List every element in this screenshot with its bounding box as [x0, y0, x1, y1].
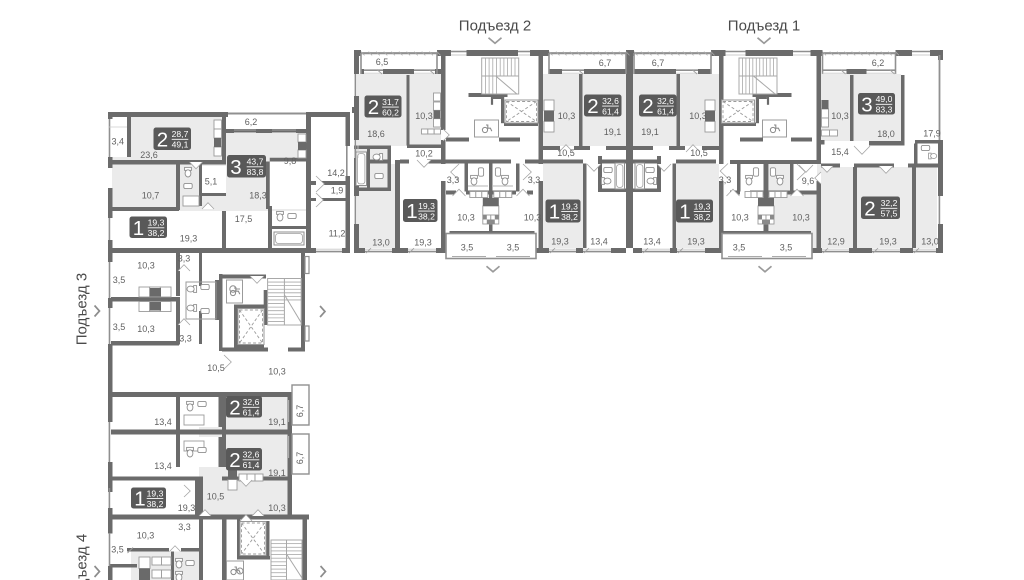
svg-text:1: 1 — [549, 201, 560, 224]
svg-text:60,2: 60,2 — [382, 107, 399, 117]
svg-text:32,6: 32,6 — [243, 450, 260, 460]
svg-text:19,1: 19,1 — [641, 127, 659, 137]
svg-text:19,3: 19,3 — [148, 218, 165, 228]
svg-text:10,5: 10,5 — [207, 363, 225, 373]
svg-text:31,7: 31,7 — [382, 97, 399, 107]
svg-text:19,1: 19,1 — [604, 127, 622, 137]
svg-text:3,4: 3,4 — [111, 137, 124, 147]
svg-text:13,0: 13,0 — [372, 238, 390, 248]
svg-text:13,4: 13,4 — [643, 237, 661, 247]
svg-text:19,3: 19,3 — [414, 238, 432, 248]
svg-text:19,3: 19,3 — [561, 201, 578, 211]
svg-text:3,5: 3,5 — [461, 243, 474, 253]
svg-text:3,3: 3,3 — [178, 254, 191, 264]
svg-text:49,0: 49,0 — [876, 94, 893, 104]
svg-text:2: 2 — [229, 396, 240, 419]
svg-text:43,7: 43,7 — [247, 157, 264, 167]
svg-text:10,3: 10,3 — [137, 531, 155, 541]
svg-text:9,6: 9,6 — [802, 176, 815, 186]
svg-text:10,5: 10,5 — [207, 492, 225, 502]
svg-text:38,2: 38,2 — [148, 228, 165, 238]
svg-text:Подъезд 3: Подъезд 3 — [73, 273, 90, 345]
svg-text:3,5: 3,5 — [780, 243, 793, 253]
svg-text:2: 2 — [587, 95, 598, 118]
svg-text:19,3: 19,3 — [694, 201, 711, 211]
svg-text:10,3: 10,3 — [457, 213, 475, 223]
svg-text:38,2: 38,2 — [418, 211, 435, 221]
svg-text:6,2: 6,2 — [245, 117, 258, 127]
svg-text:18,6: 18,6 — [367, 129, 385, 139]
svg-text:57,5: 57,5 — [881, 209, 898, 219]
svg-text:10,3: 10,3 — [524, 213, 542, 223]
svg-text:10,3: 10,3 — [831, 111, 849, 121]
svg-text:19,3: 19,3 — [879, 237, 897, 247]
svg-text:61,4: 61,4 — [243, 408, 260, 418]
svg-text:3,5: 3,5 — [113, 322, 126, 332]
svg-text:19,1: 19,1 — [268, 417, 286, 427]
svg-text:10,3: 10,3 — [268, 367, 286, 377]
svg-text:61,4: 61,4 — [602, 106, 619, 116]
svg-text:Подъезд 1: Подъезд 1 — [728, 17, 800, 34]
svg-text:38,2: 38,2 — [561, 212, 578, 222]
svg-text:3,5: 3,5 — [507, 243, 520, 253]
svg-text:14,2: 14,2 — [327, 168, 345, 178]
svg-text:13,4: 13,4 — [154, 461, 172, 471]
svg-text:32,6: 32,6 — [657, 96, 674, 106]
svg-text:19,3: 19,3 — [551, 237, 569, 247]
svg-text:10,3: 10,3 — [268, 503, 286, 513]
svg-text:6,5: 6,5 — [376, 57, 389, 67]
svg-text:32,6: 32,6 — [243, 397, 260, 407]
svg-text:10,7: 10,7 — [142, 191, 160, 201]
svg-text:61,4: 61,4 — [243, 460, 260, 470]
svg-text:10,2: 10,2 — [415, 149, 433, 159]
svg-text:Подъезд 2: Подъезд 2 — [459, 17, 531, 34]
svg-text:5,1: 5,1 — [205, 177, 218, 187]
svg-text:23,6: 23,6 — [140, 150, 158, 160]
svg-text:19,3: 19,3 — [687, 237, 705, 247]
svg-text:3,5: 3,5 — [113, 275, 126, 285]
svg-text:38,2: 38,2 — [694, 212, 711, 222]
svg-text:13,0: 13,0 — [921, 237, 939, 247]
svg-text:83,8: 83,8 — [247, 167, 264, 177]
svg-text:3,3: 3,3 — [178, 522, 191, 532]
svg-text:38,2: 38,2 — [147, 499, 164, 509]
svg-text:18,3: 18,3 — [249, 191, 267, 201]
svg-text:32,6: 32,6 — [602, 96, 619, 106]
svg-text:1: 1 — [134, 488, 145, 511]
svg-text:2: 2 — [368, 96, 379, 119]
svg-text:32,2: 32,2 — [881, 198, 898, 208]
svg-text:11,2: 11,2 — [329, 229, 346, 239]
svg-text:10,3: 10,3 — [689, 111, 707, 121]
svg-text:3,3: 3,3 — [528, 175, 541, 185]
svg-text:6,7: 6,7 — [652, 58, 665, 68]
svg-text:3,3: 3,3 — [447, 175, 460, 185]
svg-text:83,3: 83,3 — [876, 105, 893, 115]
svg-text:28,7: 28,7 — [172, 129, 189, 139]
svg-text:19,3: 19,3 — [147, 488, 164, 498]
svg-text:2: 2 — [229, 449, 240, 472]
svg-text:3,3: 3,3 — [719, 175, 732, 185]
svg-text:19,3: 19,3 — [418, 201, 435, 211]
svg-text:18,0: 18,0 — [877, 129, 895, 139]
svg-text:10,5: 10,5 — [690, 148, 708, 158]
svg-text:10,3: 10,3 — [731, 213, 749, 223]
svg-text:6,7: 6,7 — [295, 405, 305, 418]
svg-text:19,1: 19,1 — [268, 468, 286, 478]
svg-text:61,4: 61,4 — [657, 106, 674, 116]
svg-text:10,3: 10,3 — [792, 213, 810, 223]
svg-text:6,7: 6,7 — [295, 452, 305, 465]
svg-text:10,3: 10,3 — [137, 324, 155, 334]
svg-text:3: 3 — [230, 156, 241, 179]
svg-text:3: 3 — [861, 93, 872, 116]
svg-text:13,4: 13,4 — [154, 417, 172, 427]
svg-text:17,5: 17,5 — [235, 214, 253, 224]
svg-text:3,5: 3,5 — [111, 545, 124, 555]
svg-text:2: 2 — [642, 95, 653, 118]
svg-text:17,9: 17,9 — [923, 129, 941, 139]
svg-text:1: 1 — [133, 217, 144, 240]
svg-text:1: 1 — [406, 200, 417, 223]
svg-text:2: 2 — [157, 128, 168, 151]
svg-text:19,3: 19,3 — [178, 503, 196, 513]
svg-text:3,3: 3,3 — [179, 334, 192, 344]
svg-text:15,4: 15,4 — [831, 147, 849, 157]
svg-text:9,8: 9,8 — [284, 156, 297, 166]
svg-text:6,7: 6,7 — [599, 58, 612, 68]
svg-text:19,3: 19,3 — [180, 234, 198, 244]
svg-text:1: 1 — [679, 201, 690, 224]
svg-text:12,9: 12,9 — [827, 237, 845, 247]
svg-text:10,3: 10,3 — [137, 261, 155, 271]
svg-text:1,9: 1,9 — [331, 186, 344, 196]
svg-text:10,5: 10,5 — [557, 148, 575, 158]
svg-text:2: 2 — [864, 197, 875, 220]
svg-text:3,5: 3,5 — [733, 243, 746, 253]
svg-text:10,3: 10,3 — [558, 111, 576, 121]
svg-text:Подъезд 4: Подъезд 4 — [73, 534, 90, 580]
svg-text:6,2: 6,2 — [872, 58, 885, 68]
svg-text:49,1: 49,1 — [172, 140, 189, 150]
svg-text:13,4: 13,4 — [590, 237, 608, 247]
svg-text:10,3: 10,3 — [415, 111, 433, 121]
